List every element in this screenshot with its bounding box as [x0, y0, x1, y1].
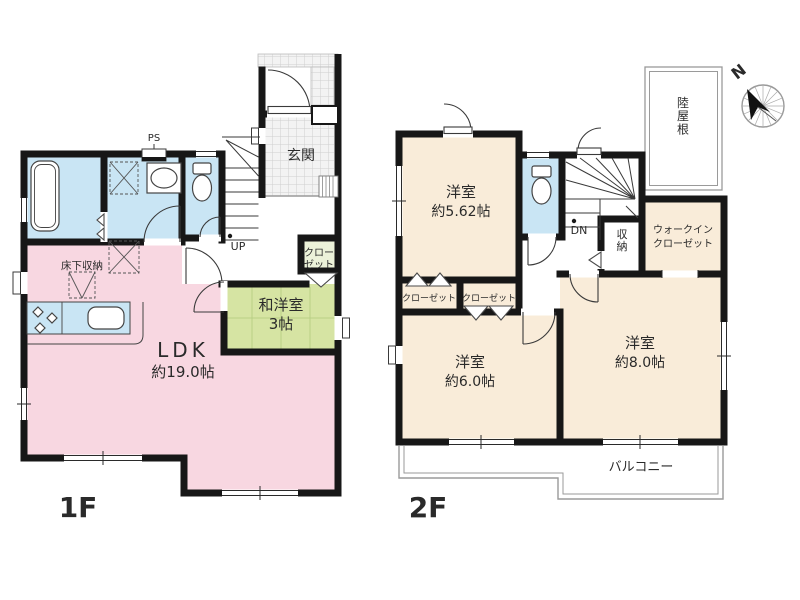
label-room80-area: 約8.0帖 — [615, 355, 665, 371]
wash-basin — [147, 163, 181, 193]
label-floor1: 1F — [59, 491, 98, 524]
room562-door — [443, 104, 473, 138]
label-ldk-area: 約19.0帖 — [151, 363, 214, 381]
hall-side-door — [252, 128, 259, 144]
label-ps: PS — [148, 133, 160, 144]
floor-plan-page: 玄関 PS UP クロー ゼット 床下収納 LDK 約19.0帖 和洋室 3帖 … — [0, 0, 800, 600]
compass: N — [728, 60, 784, 127]
label-underfloor: 床下収納 — [61, 259, 103, 272]
wayoshitsu-side-door — [343, 318, 350, 338]
floor-plan-svg: 玄関 PS UP クロー ゼット 床下収納 LDK 約19.0帖 和洋室 3帖 … — [0, 0, 800, 600]
label-closet-1f-line2: ゼット — [304, 259, 334, 271]
shoe-cabinet — [312, 106, 338, 124]
storage-door-2f — [589, 251, 605, 269]
label-room562: 洋室 — [446, 183, 476, 201]
porch-step — [258, 54, 338, 67]
balcony — [399, 446, 723, 499]
floor2-plan: N 洋室 約5.62帖 クローゼット クローゼット 洋室 約6.0帖 洋室 約8… — [389, 60, 785, 524]
label-ldk: LDK — [157, 338, 209, 362]
label-genkan: 玄関 — [287, 147, 315, 164]
label-closet-2f-b: クローゼット — [462, 292, 516, 304]
label-floor2: 2F — [409, 491, 448, 524]
toilet-door-2f — [528, 234, 556, 266]
label-wic-line1: ウォークイン — [653, 224, 713, 236]
walk-in-closet — [642, 199, 724, 274]
hall-ldk-door — [186, 248, 222, 284]
label-wic-line2: クローゼット — [653, 238, 713, 250]
label-room562-area: 約5.62帖 — [431, 204, 490, 220]
label-up: UP — [231, 240, 246, 253]
stairs-1f — [222, 137, 260, 240]
label-storage: 収納 — [617, 228, 628, 253]
bathtub — [31, 161, 59, 231]
label-wayoshitsu-area: 3帖 — [269, 315, 294, 333]
toilet-fixture-1f — [193, 163, 212, 201]
kitchen-back-door — [13, 272, 21, 294]
label-room60-area: 約6.0帖 — [445, 374, 495, 390]
toilet-fixture-2f — [532, 166, 551, 204]
stair-hall-door-2f — [577, 128, 601, 159]
label-flat-roof: 陸屋根 — [677, 96, 689, 136]
label-closet-2f-a: クローゼット — [402, 292, 456, 304]
label-north: N — [728, 60, 750, 83]
label-closet-1f-line1: クロー — [304, 247, 334, 259]
label-room80: 洋室 — [625, 334, 655, 352]
floor1-plan: 玄関 PS UP クロー ゼット 床下収納 LDK 約19.0帖 和洋室 3帖 … — [13, 54, 350, 524]
pipe-space — [142, 144, 166, 161]
label-room60: 洋室 — [455, 353, 485, 371]
label-dn: DN — [571, 224, 588, 237]
label-balcony: バルコニー — [609, 460, 674, 475]
label-wayoshitsu: 和洋室 — [258, 296, 303, 314]
entrance-door — [267, 70, 312, 118]
genkan-step-cabinet — [319, 176, 338, 197]
